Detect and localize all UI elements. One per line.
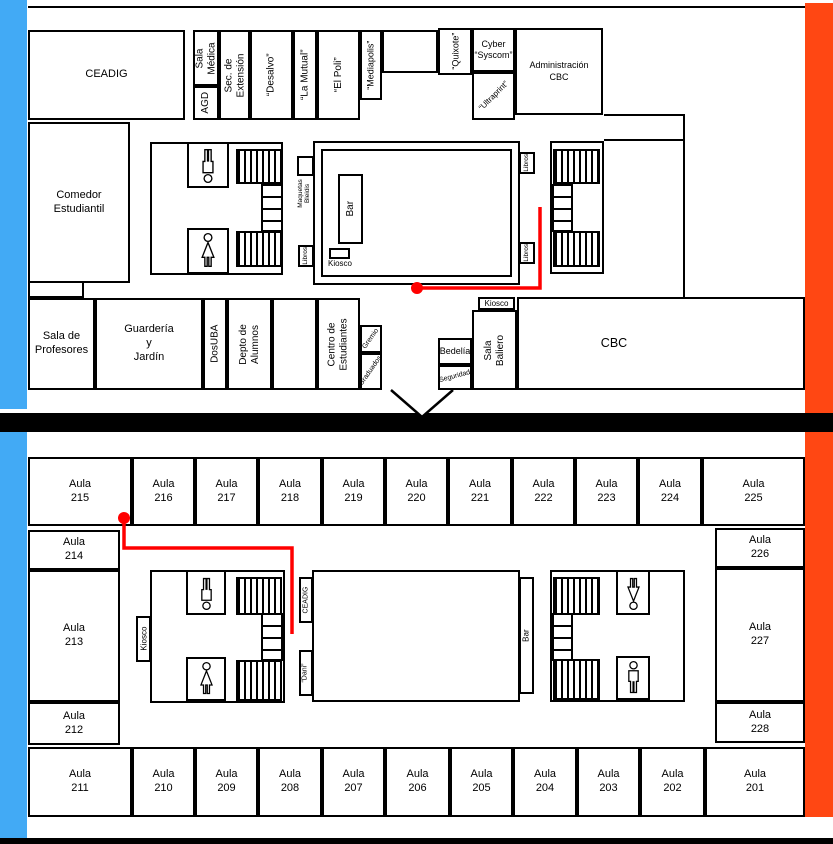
room-aula-205: Aula 205 [450,747,513,817]
blue-wing-bar-floor2 [0,432,27,838]
kiosk-ceadig-floor2: CEADIG [299,577,313,623]
stairs-hatch [236,660,282,701]
blue-wing-bar-floor1 [0,0,27,409]
kiosk-kiosco-label-floor1: Kiosco [315,258,365,269]
room-sec-de-extension: Sec. de Extensión [219,30,250,120]
room-unlabeled-top [382,30,438,73]
woman-icon [199,232,217,270]
room-cbc: CBC [517,297,805,390]
room-comedor-estudiantil: Comedor Estudiantil [28,122,130,283]
floor1-wall-segment [604,139,685,141]
bottom-edge-bar [0,838,833,844]
room-aula-207: Aula 207 [322,747,385,817]
kiosk-dani-floor2: “Dani” [299,650,313,696]
room-aula-209: Aula 209 [195,747,258,817]
room-aula-217: Aula 217 [195,457,258,526]
room-administracion-cbc: Administración CBC [515,28,603,115]
wc-women-floor2-right [616,570,650,615]
stairs-hatch [236,577,282,615]
room-aula-208: Aula 208 [258,747,322,817]
wc-men-floor2-right [616,656,650,700]
stairs-hatch [553,231,600,267]
kiosk-libros-left: Libros [298,245,314,267]
stairs-steps [261,184,283,232]
orange-wing-bar-floor2 [805,432,833,817]
wc-women-floor2-left [186,657,226,701]
room-unlabeled-bottom [272,298,317,390]
stairs-hatch [236,231,282,267]
room-aula-215: Aula 215 [28,457,132,526]
room-aula-214: Aula 214 [28,530,120,570]
wc-men-floor1 [187,142,229,188]
room-aula-222: Aula 222 [512,457,575,526]
room-aula-212: Aula 212 [28,702,120,745]
kiosk-kiosco-floor2: Kiosco [136,616,151,662]
room-aula-228: Aula 228 [715,702,805,743]
woman-icon [198,661,215,697]
room-mediapolis: “Mediapolis” [360,30,382,100]
room-aula-201: Aula 201 [705,747,805,817]
room-aula-223: Aula 223 [575,457,638,526]
room-aula-206: Aula 206 [385,747,450,817]
room-graduados: Graduados [360,353,382,390]
man-icon [625,660,642,696]
room-depto-de-alumnos: Depto de Alumnos [227,298,272,390]
room-guarderia-y-jardin: Guardería y Jardín [95,298,203,390]
room-cyber-syscom: Cyber “Syscom” [472,28,515,72]
room-aula-220: Aula 220 [385,457,448,526]
stairs-steps [261,613,283,661]
stairs-hatch [553,659,600,700]
room-aula-221: Aula 221 [448,457,512,526]
room-dosuba: DosUBA [203,298,227,390]
room-aula-219: Aula 219 [322,457,385,526]
kiosk-libros-right-1: Libros [519,152,535,174]
floor1-outline-top [28,6,805,8]
stairs-steps [552,184,573,232]
stairs-hatch [236,149,282,184]
room-aula-202: Aula 202 [640,747,705,817]
room-gremio: Gremio [360,325,382,353]
central-hall-floor2 [312,570,520,702]
room-bedelia: Bedelía [438,338,472,365]
room-quixote: “Quixote” [438,28,472,75]
room-ceadig: CEADIG [28,30,185,120]
room-aula-216: Aula 216 [132,457,195,526]
kiosk-libros-right-2: Libros [519,242,535,264]
room-ultraprint: “Ultraprint” [472,72,515,120]
wc-men-floor2-left [186,570,226,615]
room-aula-218: Aula 218 [258,457,322,526]
room-seguridad: Seguridad [438,365,472,390]
room-desalvo: “Desalvo” [250,30,293,120]
room-sala-de-profesores: Sala de Profesores [28,298,95,390]
stairs-steps [552,613,573,661]
room-aula-225: Aula 225 [702,457,805,526]
floor1-wall-segment [683,114,685,300]
floor1-wall-segment [604,114,685,116]
room-el-poli: “El Poli” [317,30,360,120]
kiosk-maquetas-box [297,156,314,176]
room-aula-203: Aula 203 [577,747,640,817]
building-floorplan: CEADIG Sala Médica AGD Sec. de Extensión… [0,0,833,844]
room-comedor-extension [28,281,84,298]
room-sala-baliero: Sala Baliero [472,310,517,390]
man-icon [198,575,215,611]
room-aula-204: Aula 204 [513,747,577,817]
room-aula-213: Aula 213 [28,570,120,702]
room-aula-211: Aula 211 [28,747,132,817]
bar-counter-floor2: Bar [519,577,534,694]
kiosk-kiosco-baliero: Kiosco [478,297,515,310]
room-aula-227: Aula 227 [715,568,805,702]
bar-counter-floor1: Bar [338,174,363,244]
room-aula-226: Aula 226 [715,528,805,568]
wc-women-floor1 [187,228,229,274]
room-aula-224: Aula 224 [638,457,702,526]
room-sala-medica: Sala Médica [193,30,219,86]
room-centro-de-estudiantes: Centro de Estudiantes [317,298,360,390]
room-aula-210: Aula 210 [132,747,195,817]
man-icon [199,146,217,184]
woman-icon [625,575,642,611]
stairs-hatch [553,149,600,184]
orange-wing-bar-floor1 [805,3,833,413]
room-agd: AGD [193,86,219,120]
stairs-hatch [553,577,600,615]
room-la-mutual: “La Mutual” [293,30,317,120]
floor-divider-bar [0,413,833,432]
